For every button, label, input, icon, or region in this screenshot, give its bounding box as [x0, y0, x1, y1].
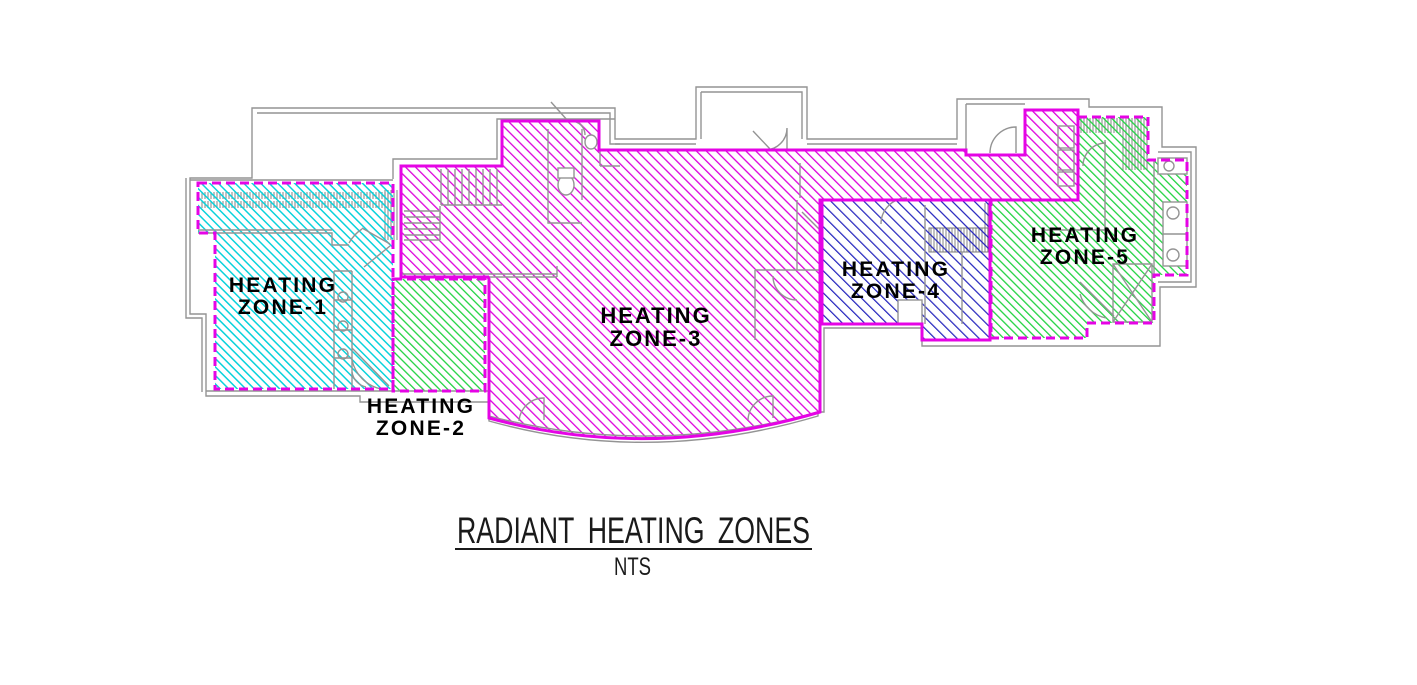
svg-text:NTS: NTS [614, 553, 651, 581]
svg-text:RADIANT HEATING ZONES: RADIANT HEATING ZONES [457, 510, 810, 551]
